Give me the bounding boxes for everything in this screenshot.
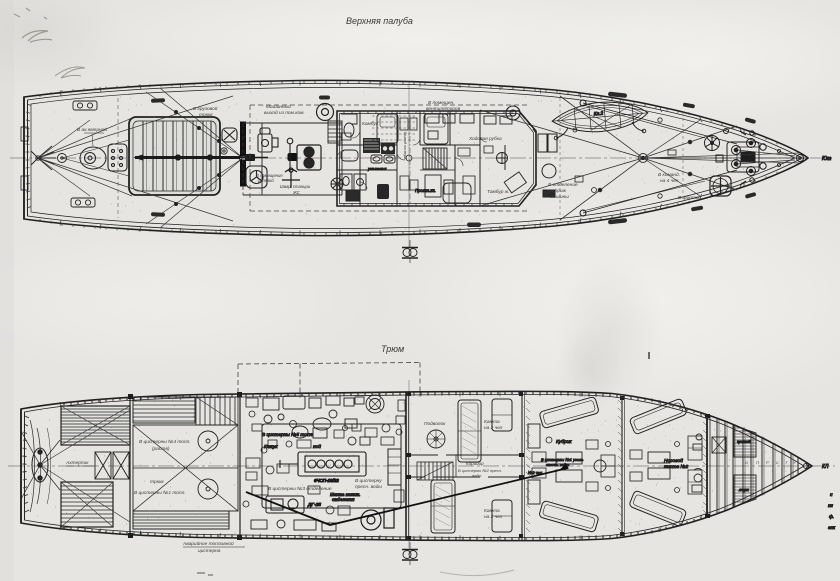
svg-text:Носовой: Носовой: [664, 457, 683, 464]
svg-text:В ак.ямерной: В ак.ямерной: [77, 126, 107, 133]
svg-text:В цистерны №4 топл.: В цистерны №4 топл.: [139, 439, 191, 445]
svg-text:цепной: цепной: [737, 439, 751, 444]
svg-text:В грузовой: В грузовой: [193, 105, 218, 112]
svg-text:машины: машины: [550, 195, 569, 200]
svg-text:трюм: трюм: [199, 113, 213, 118]
svg-text:выход из пом.ком.: выход из пом.ком.: [264, 110, 305, 116]
svg-text:Машинный: Машинный: [266, 103, 291, 110]
svg-text:В цистерны №3 отделение: В цистерны №3 отделение: [268, 486, 332, 492]
svg-text:Ахтерпик: Ахтерпик: [65, 460, 89, 466]
svg-text:воды: воды: [472, 473, 481, 478]
svg-text:на 2 чел: на 2 чел: [484, 425, 503, 431]
svg-text:ня: ня: [828, 503, 833, 508]
svg-text:Каюта: Каюта: [484, 508, 500, 514]
svg-text:Р: Р: [766, 460, 769, 465]
svg-text:ЖС: ЖС: [292, 190, 301, 195]
svg-text:Верхняя палуба: Верхняя палуба: [346, 16, 413, 26]
svg-text:Ходовая рубка: Ходовая рубка: [468, 136, 502, 142]
svg-text:Подволок: Подволок: [424, 421, 446, 427]
svg-text:анк: анк: [828, 525, 836, 530]
svg-text:на 4 чел: на 4 чел: [660, 178, 679, 184]
svg-text:Швар. станции: Швар. станции: [280, 184, 311, 189]
svg-text:трюм: трюм: [150, 480, 164, 485]
svg-text:Кл.2: Кл.2: [593, 111, 603, 118]
svg-text:ф.: ф.: [829, 514, 834, 519]
svg-text:Кубрик: Кубрик: [556, 439, 572, 445]
svg-text:Трюм: Трюм: [381, 344, 404, 354]
svg-text:В форпик: В форпик: [678, 195, 700, 201]
svg-text:ной: ной: [313, 443, 321, 450]
svg-text:КЛ: КЛ: [822, 464, 829, 470]
svg-text:рулевой: рулевой: [257, 178, 274, 183]
svg-text:умывальн: умывальн: [367, 166, 387, 171]
svg-text:каюта №2: каюта №2: [664, 464, 689, 470]
svg-text:рефриж: рефриж: [547, 188, 567, 194]
svg-text:Аварийное топливной: Аварийное топливной: [182, 540, 234, 547]
svg-text:отделения: отделения: [332, 497, 355, 502]
svg-text:ДГ-25: ДГ-25: [307, 502, 321, 508]
svg-text:цистерна: цистерна: [198, 549, 221, 554]
svg-text:С: С: [776, 460, 779, 465]
svg-text:6ЧСП-18/22: 6ЧСП-18/22: [314, 478, 339, 483]
svg-text:О: О: [745, 460, 748, 465]
svg-text:(раств): (раств): [152, 446, 170, 452]
svg-text:У: У: [793, 460, 796, 465]
svg-text:Ют: Ют: [822, 156, 831, 162]
svg-text:на 2 чел: на 2 чел: [484, 514, 503, 520]
svg-text:В цистерны №5 топл.: В цистерны №5 топл.: [262, 432, 314, 438]
svg-text:ящик: ящик: [738, 487, 750, 492]
svg-text:вентиляторов: вентиляторов: [426, 107, 461, 112]
svg-text:В цистерну: В цистерну: [355, 478, 382, 484]
svg-text:В цистерны №1 топл.: В цистерны №1 топл.: [134, 490, 186, 496]
svg-text:П: П: [756, 460, 759, 465]
svg-text:пресн. воды: пресн. воды: [355, 484, 382, 490]
svg-text:Тамбур ж.: Тамбур ж.: [487, 189, 509, 195]
